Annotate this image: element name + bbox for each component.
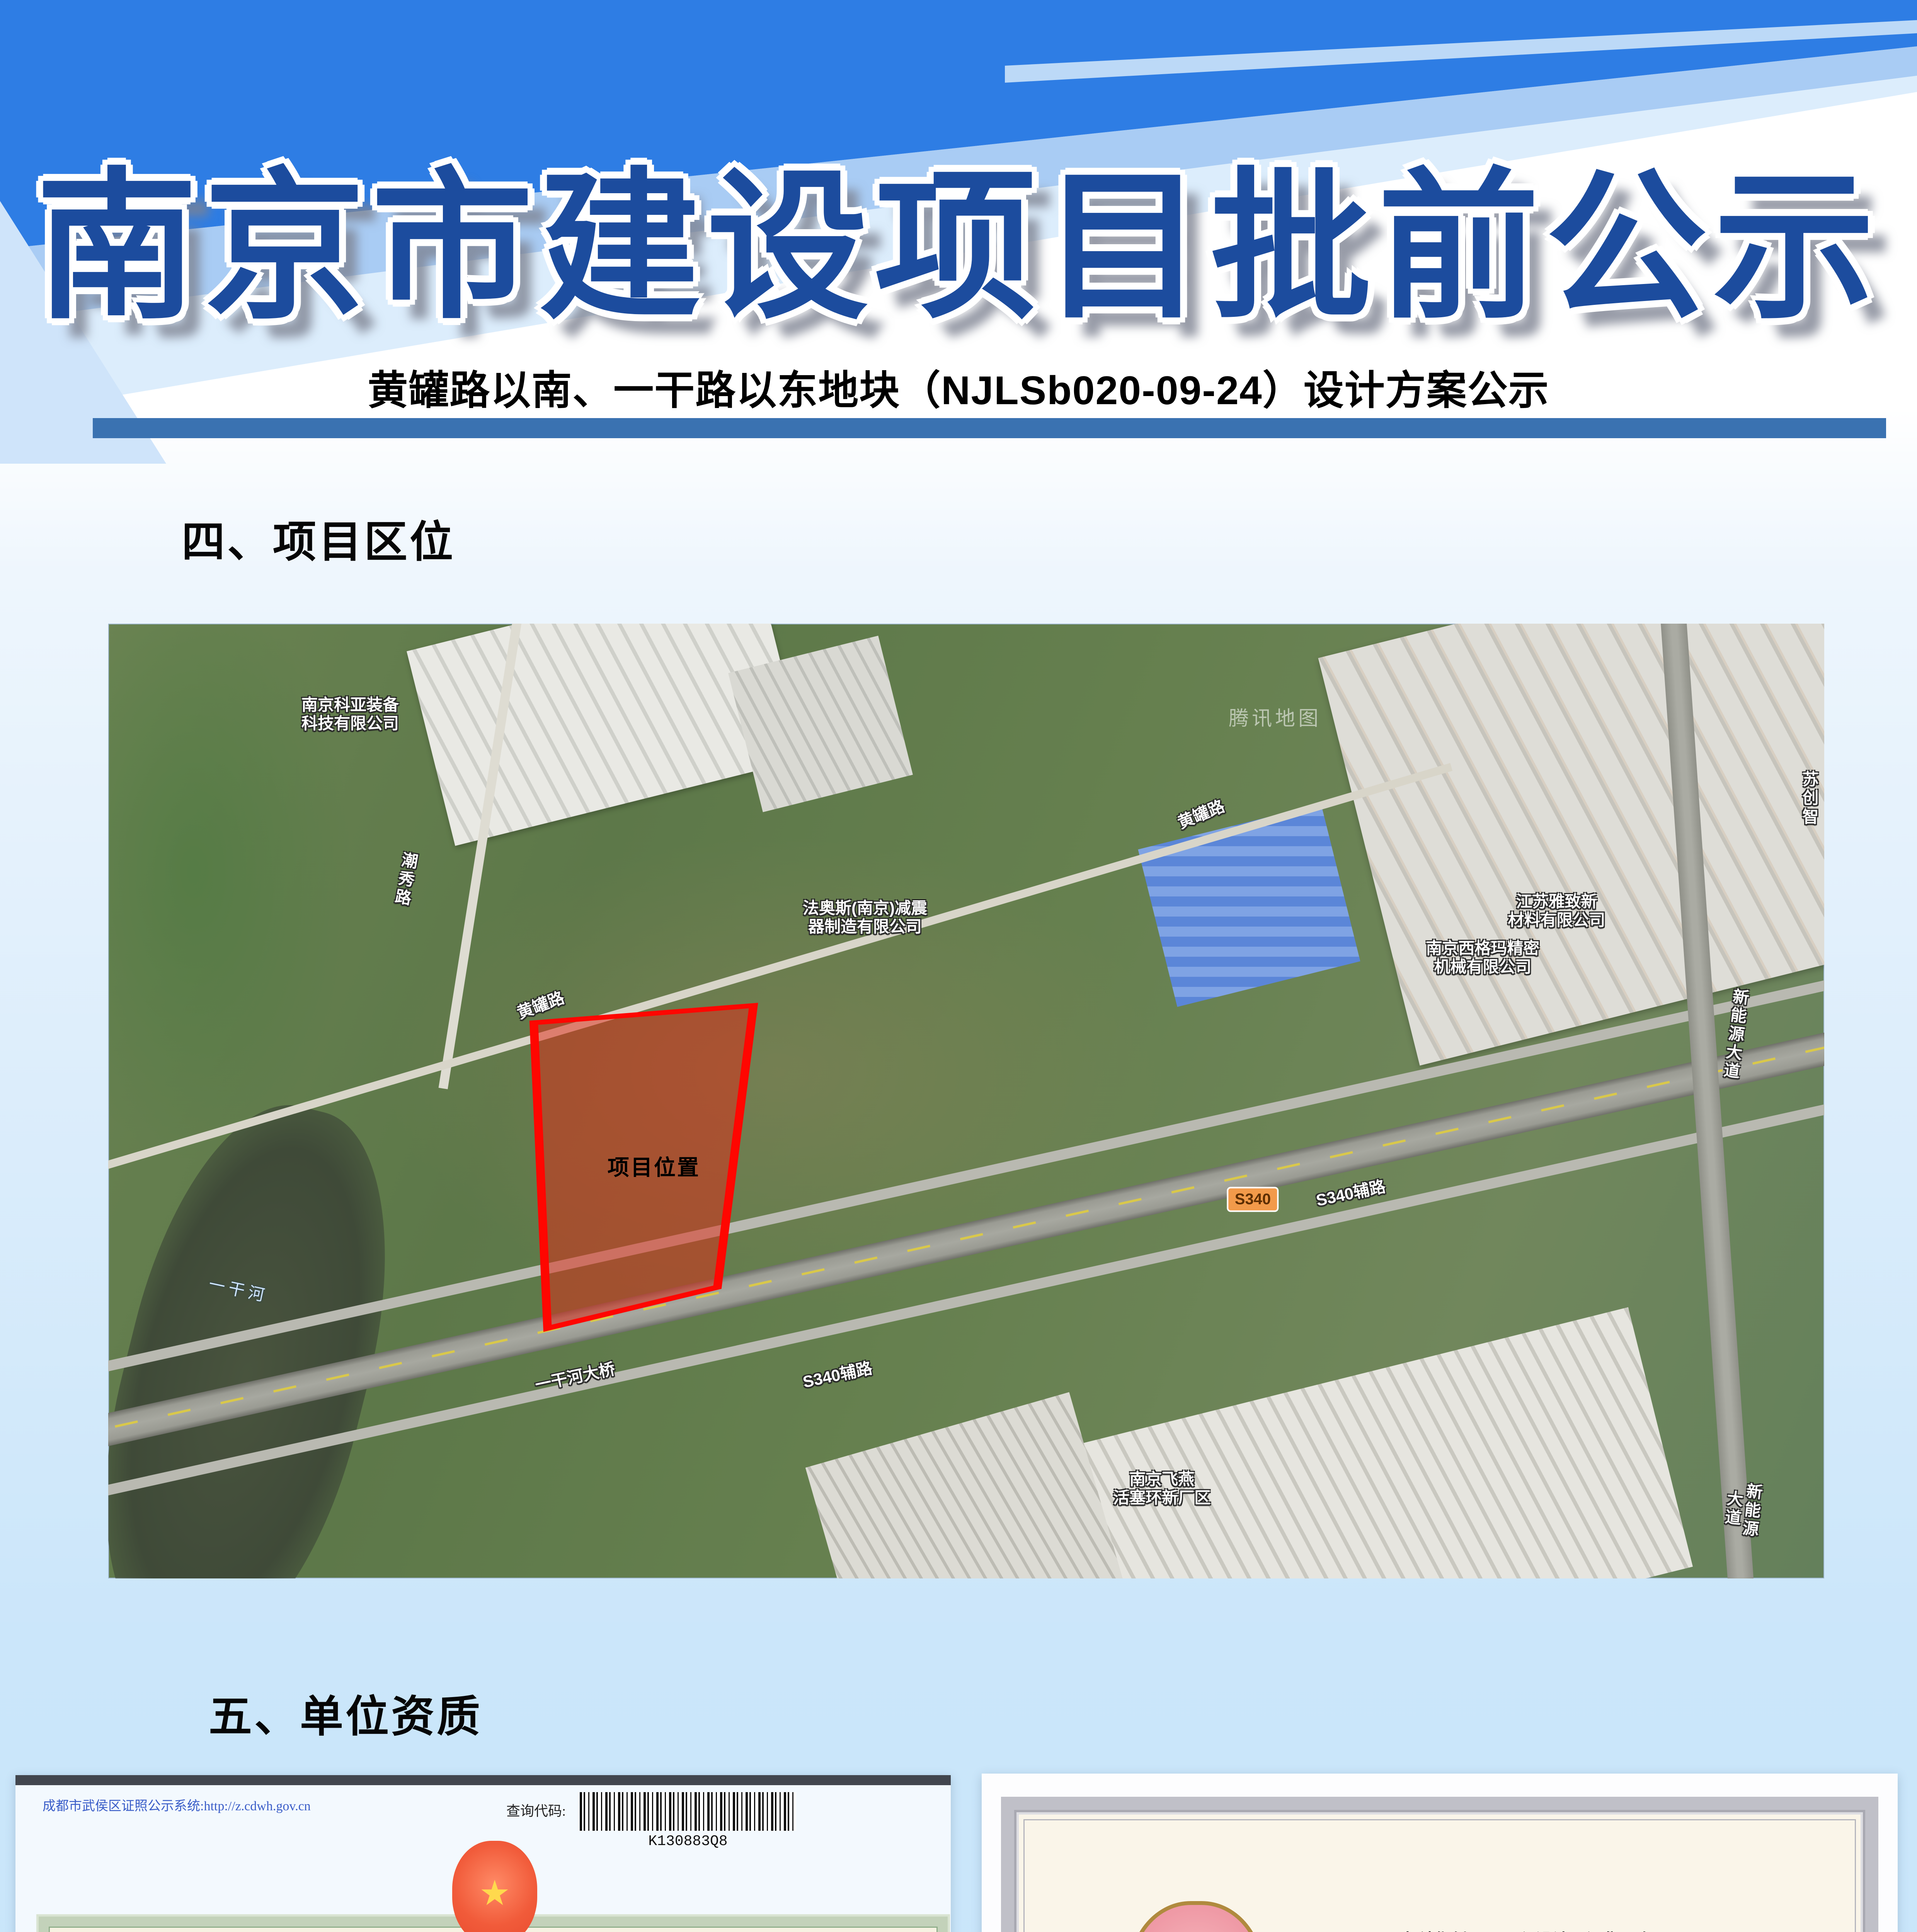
national-emblem-icon: ★	[452, 1841, 537, 1932]
license-barcode-number: K130883Q8	[580, 1833, 796, 1850]
satellite-map: 南京科亚装备 科技有限公司黄罐路法奥斯(南京)减震 器制造有限公司江苏雅致新 材…	[108, 624, 1824, 1578]
license-photo-top-edge	[15, 1775, 951, 1785]
qualification-certificate-photo: ★ 企 业 名 称 ： 中科华创国际工程设计顾问集团有 限公司 经 济 性 质 …	[982, 1774, 1898, 1932]
business-license-photo: 成都市武侯区证照公示系统:http://z.cdwh.gov.cn 查询代码: …	[15, 1775, 951, 1932]
license-site-url: 成都市武侯区证照公示系统:http://z.cdwh.gov.cn	[43, 1795, 311, 1814]
project-plot-overlay	[108, 624, 1824, 1578]
subtitle-underline-bar	[93, 418, 1886, 438]
map-label: 法奥斯(南京)减震 器制造有限公司	[803, 899, 927, 937]
map-label: 南京飞燕 活塞环新厂区	[1113, 1470, 1210, 1507]
poster-page: 南京市建设项目批前公示 黄罐路以南、一干路以东地块（NJLSb020-09-24…	[0, 0, 1917, 1932]
s340-route-badge: S340	[1227, 1187, 1279, 1212]
map-label: 南京西格玛精密 机械有限公司	[1426, 939, 1539, 977]
map-label: 新能源大道	[1720, 1474, 1764, 1546]
page-title: 南京市建设项目批前公示	[0, 116, 1917, 350]
section-heading-location: 四、项目区位	[182, 507, 455, 570]
license-query-label: 查询代码:	[506, 1800, 566, 1820]
certificate-frame	[1001, 1797, 1878, 1932]
license-barcode	[580, 1792, 796, 1831]
map-label: 苏创智	[1802, 770, 1818, 827]
map-label: 江苏雅致新 材料有限公司	[1508, 892, 1605, 930]
map-label: 项目位置	[608, 1155, 700, 1180]
enterprise-name-value: 中科华创国际工程设计顾问集团有 限公司	[1399, 1928, 1824, 1932]
map-label: 腾讯地图	[1229, 707, 1321, 731]
map-label: 南京科亚装备 科技有限公司	[301, 696, 399, 733]
page-subtitle: 黄罐路以南、一干路以东地块（NJLSb020-09-24）设计方案公示	[0, 357, 1917, 416]
section-heading-qualification: 五、单位资质	[209, 1682, 482, 1744]
